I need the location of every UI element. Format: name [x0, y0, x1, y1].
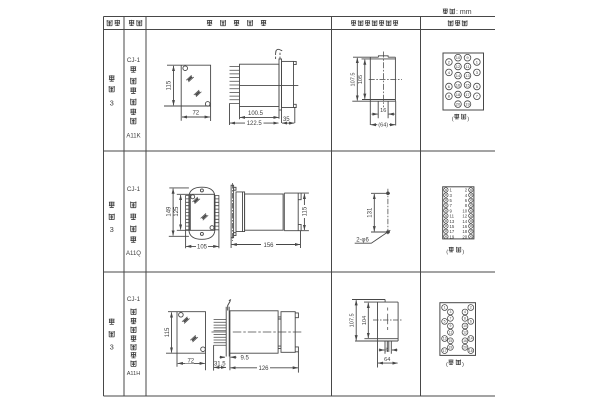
svg-text:19: 19	[450, 234, 455, 239]
svg-text:16: 16	[384, 347, 389, 352]
svg-text:16: 16	[463, 339, 467, 343]
svg-text:3: 3	[110, 99, 114, 108]
svg-text:14: 14	[469, 337, 473, 341]
svg-text:5: 5	[476, 84, 479, 89]
svg-text:): )	[467, 117, 469, 123]
svg-text:15: 15	[465, 82, 470, 87]
svg-text:3: 3	[110, 225, 114, 234]
svg-text:107.5: 107.5	[351, 73, 357, 87]
svg-text:15: 15	[449, 339, 453, 343]
svg-text:17: 17	[443, 349, 447, 353]
svg-text:131: 131	[368, 207, 374, 218]
svg-text:: mm: : mm	[456, 9, 472, 16]
svg-text:3: 3	[110, 343, 114, 352]
svg-text:11: 11	[449, 331, 453, 335]
svg-text:18: 18	[456, 92, 461, 97]
svg-text:A11H: A11H	[127, 371, 141, 377]
svg-text:18: 18	[469, 349, 473, 353]
svg-text:10: 10	[463, 324, 467, 328]
svg-text:3: 3	[449, 310, 451, 314]
svg-text:): )	[462, 362, 464, 368]
svg-text:1: 1	[444, 306, 446, 310]
svg-text:115: 115	[303, 206, 309, 216]
svg-text:35: 35	[283, 117, 290, 123]
svg-text:CJ-1: CJ-1	[127, 186, 141, 193]
svg-text:100.5: 100.5	[248, 111, 264, 117]
svg-text:2: 2	[470, 306, 472, 310]
svg-text:16: 16	[380, 108, 386, 114]
svg-text:5: 5	[444, 320, 446, 324]
svg-text:122.5: 122.5	[247, 121, 263, 127]
svg-text:104: 104	[362, 316, 368, 325]
svg-text:19: 19	[465, 102, 470, 107]
svg-text:CJ-1: CJ-1	[127, 57, 141, 64]
svg-text:125: 125	[174, 206, 180, 217]
svg-text:12: 12	[456, 64, 461, 69]
svg-text:31.5: 31.5	[214, 361, 226, 367]
svg-text:10: 10	[456, 55, 461, 60]
svg-text:4: 4	[448, 70, 451, 75]
svg-text:149: 149	[167, 206, 173, 217]
svg-text:7: 7	[449, 317, 451, 321]
svg-text:72: 72	[187, 358, 194, 364]
svg-text:6: 6	[470, 320, 472, 324]
svg-text:9: 9	[466, 55, 469, 60]
svg-text:64: 64	[384, 357, 390, 363]
svg-text:156: 156	[263, 243, 274, 249]
svg-text:72: 72	[192, 111, 199, 117]
svg-text:20: 20	[456, 102, 461, 107]
svg-text:2: 2	[448, 60, 451, 65]
svg-text:2-φ6: 2-φ6	[356, 237, 369, 243]
svg-text:107.5: 107.5	[350, 313, 356, 327]
svg-text:A11K: A11K	[126, 133, 140, 139]
svg-text:105: 105	[358, 75, 364, 84]
svg-text:11: 11	[465, 64, 470, 69]
svg-text:1: 1	[476, 60, 479, 65]
svg-text:9.5: 9.5	[241, 356, 250, 362]
svg-text:19: 19	[449, 346, 453, 350]
svg-text:): )	[462, 250, 464, 256]
svg-text:8: 8	[448, 94, 451, 99]
svg-text:CJ-1: CJ-1	[127, 296, 141, 303]
svg-text:105: 105	[197, 245, 208, 251]
svg-text:8: 8	[464, 317, 466, 321]
svg-text:7: 7	[476, 94, 479, 99]
svg-text:13: 13	[443, 337, 447, 341]
svg-text:(64): (64)	[378, 123, 388, 129]
svg-text:16: 16	[456, 82, 461, 87]
svg-text:115: 115	[165, 327, 171, 337]
svg-text:3: 3	[476, 70, 479, 75]
svg-text:(: (	[446, 250, 448, 256]
svg-text:(: (	[446, 362, 448, 368]
svg-text:13: 13	[465, 73, 470, 78]
svg-text:9: 9	[449, 324, 451, 328]
svg-text:(: (	[452, 117, 454, 123]
svg-text:4: 4	[464, 310, 466, 314]
svg-text:6: 6	[448, 84, 451, 89]
svg-text:A11Q: A11Q	[126, 251, 141, 257]
svg-text:12: 12	[463, 331, 467, 335]
svg-text:126: 126	[258, 366, 269, 372]
svg-text:20: 20	[462, 234, 467, 239]
svg-text:20: 20	[463, 346, 467, 350]
svg-text:115: 115	[167, 80, 173, 90]
svg-text:14: 14	[456, 73, 461, 78]
svg-text:17: 17	[465, 92, 470, 97]
